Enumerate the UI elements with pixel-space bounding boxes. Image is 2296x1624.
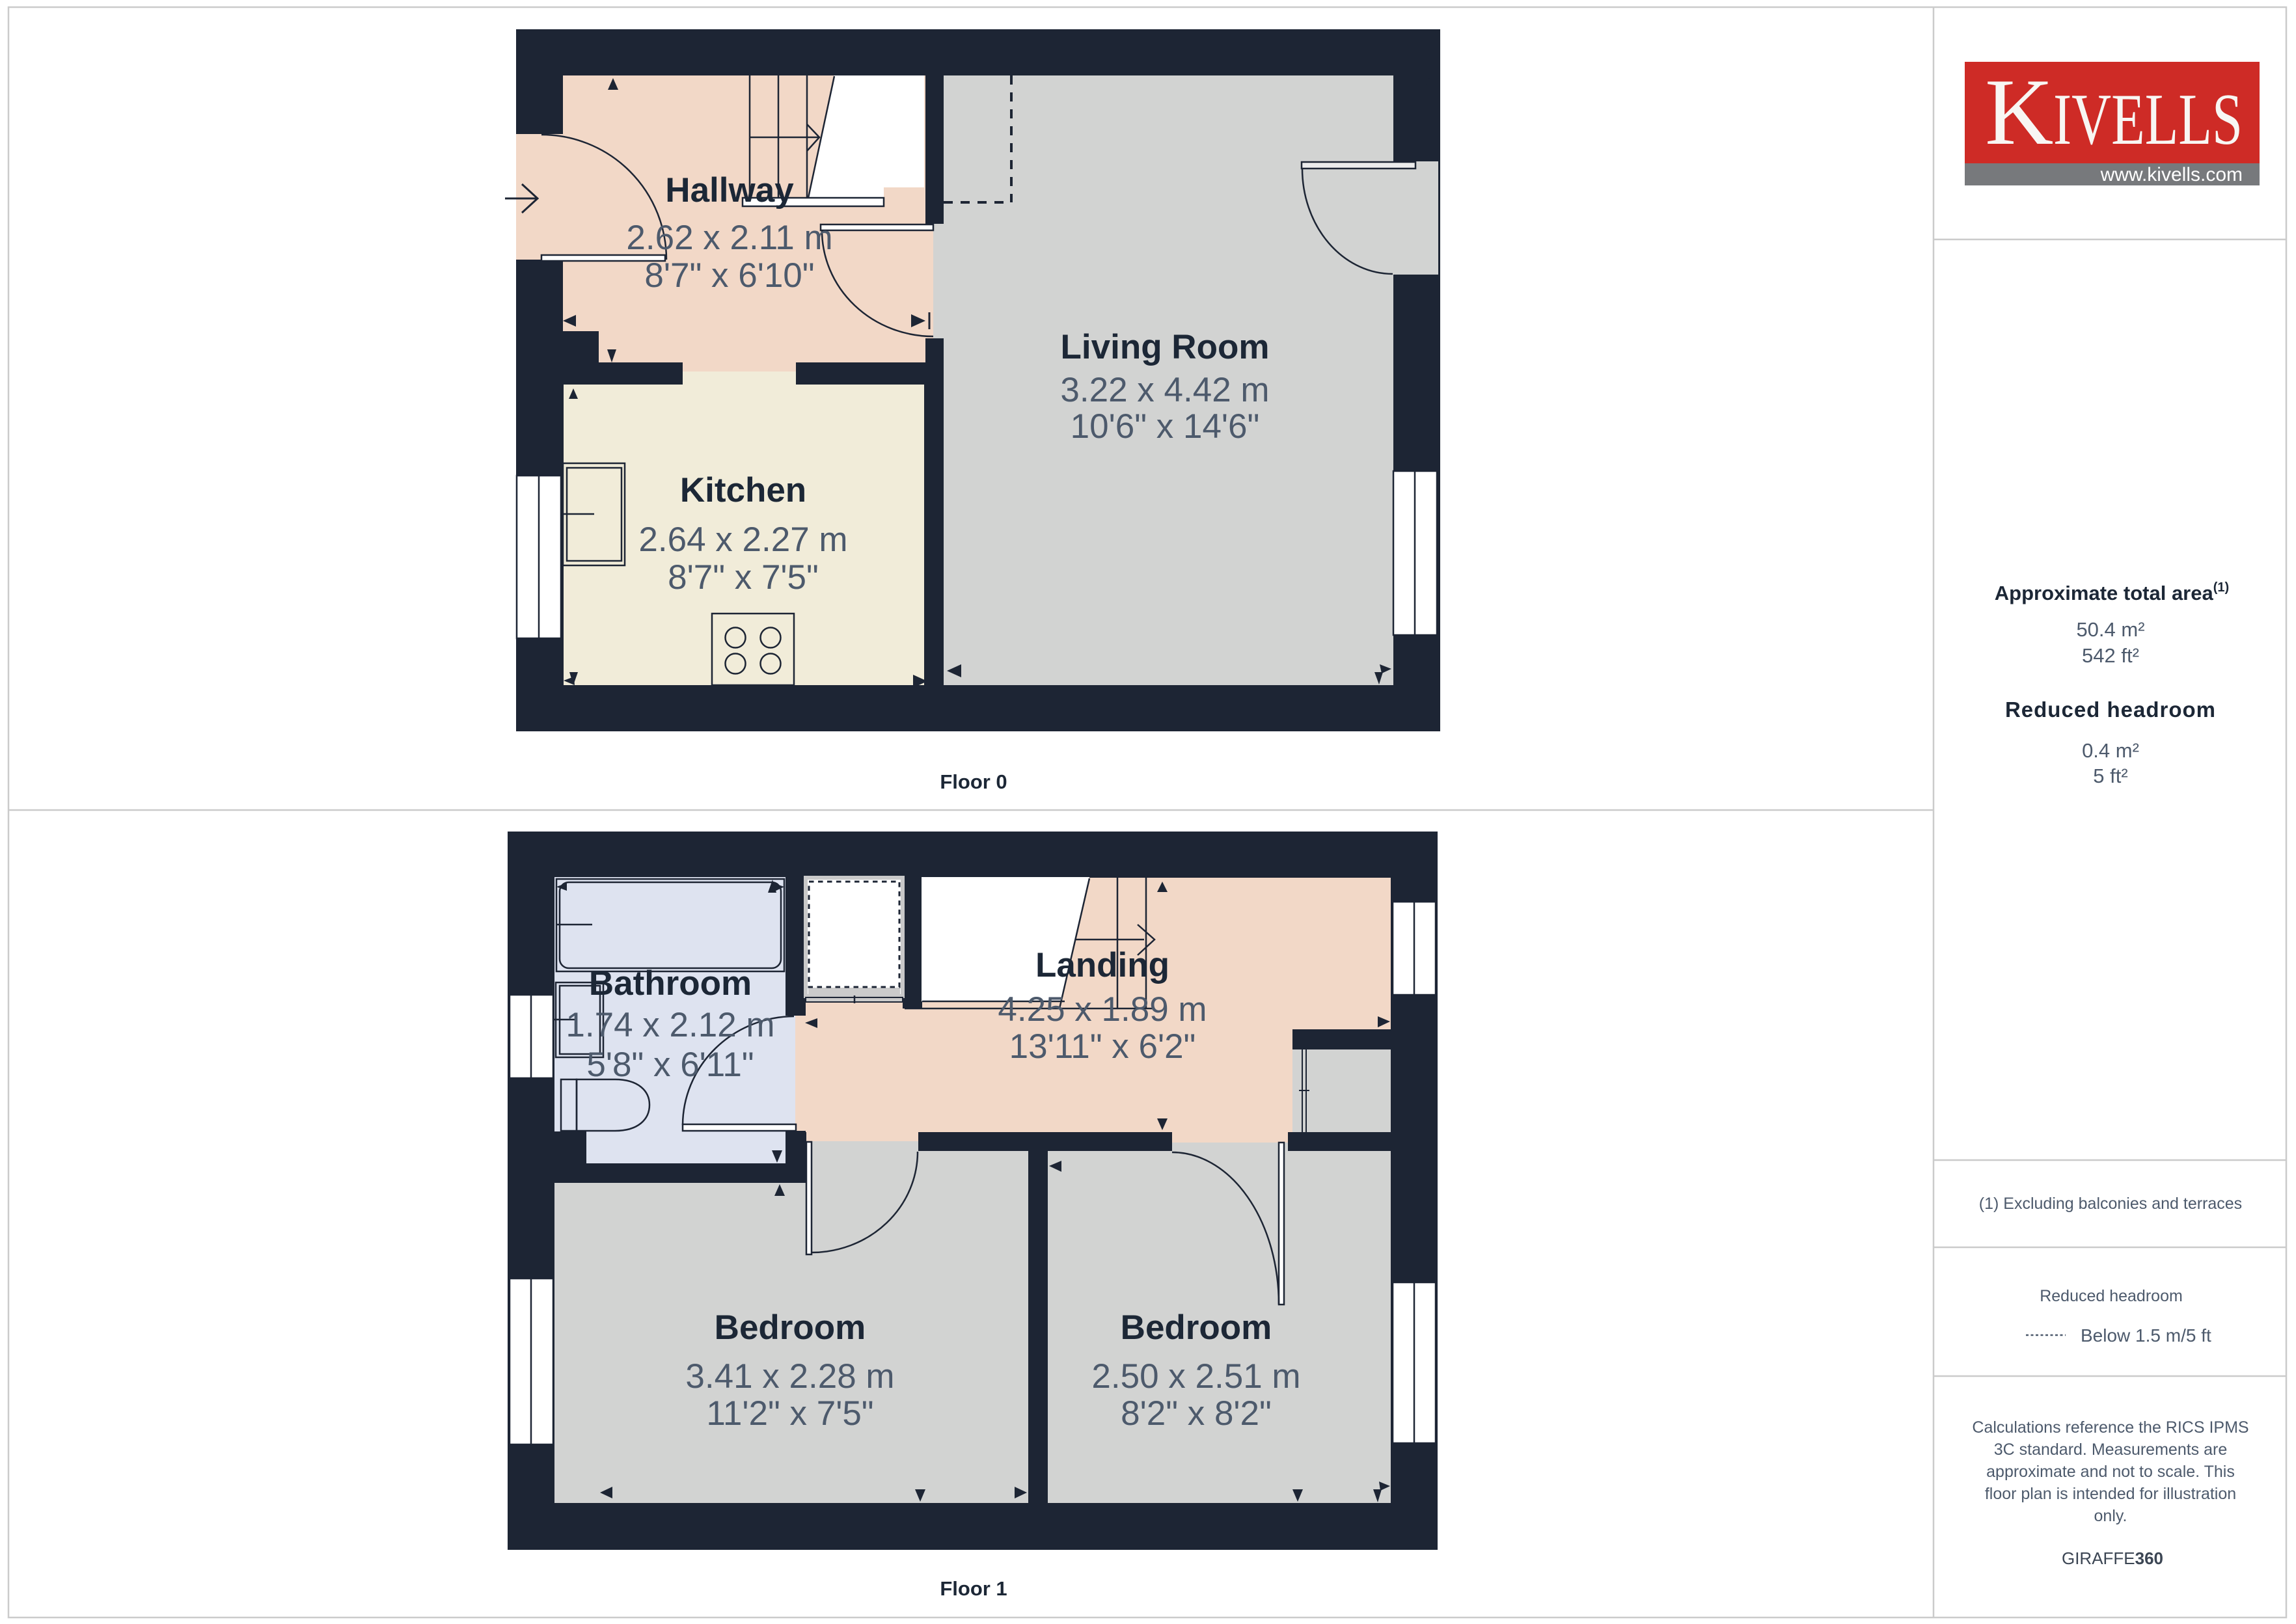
svg-text:3C standard. Measurements are: 3C standard. Measurements are <box>1994 1441 2228 1459</box>
svg-text:50.4 m²: 50.4 m² <box>2076 618 2144 641</box>
svg-text:13'11" x 6'2": 13'11" x 6'2" <box>1009 1027 1196 1066</box>
svg-text:2.62 x 2.11 m: 2.62 x 2.11 m <box>626 219 832 257</box>
svg-text:Reduced headroom: Reduced headroom <box>2040 1287 2183 1305</box>
svg-text:K: K <box>1985 59 2053 165</box>
svg-text:Floor 0: Floor 0 <box>940 770 1007 793</box>
svg-text:3.22 x 4.42 m: 3.22 x 4.42 m <box>1060 371 1269 409</box>
svg-text:8'7" x 7'5": 8'7" x 7'5" <box>668 558 819 597</box>
svg-text:Bathroom: Bathroom <box>589 964 752 1003</box>
svg-text:2.64 x 2.27 m: 2.64 x 2.27 m <box>638 521 847 559</box>
svg-text:Below 1.5 m/5 ft: Below 1.5 m/5 ft <box>2081 1325 2211 1346</box>
svg-text:2.50 x 2.51 m: 2.50 x 2.51 m <box>1091 1357 1300 1396</box>
svg-text:Hallway: Hallway <box>665 171 794 210</box>
svg-text:4.25 x 1.89 m: 4.25 x 1.89 m <box>998 990 1207 1029</box>
svg-text:542 ft²: 542 ft² <box>2082 644 2139 667</box>
svg-text:5 ft²: 5 ft² <box>2093 765 2127 787</box>
svg-text:(1) Excluding balconies and te: (1) Excluding balconies and terraces <box>1979 1195 2242 1213</box>
svg-text:GIRAFFE360: GIRAFFE360 <box>2062 1549 2163 1568</box>
svg-text:Floor 1: Floor 1 <box>940 1577 1007 1600</box>
svg-text:IVELLS: IVELLS <box>2053 79 2243 160</box>
svg-text:8'7" x 6'10": 8'7" x 6'10" <box>644 256 814 295</box>
svg-text:Landing: Landing <box>1035 946 1169 984</box>
svg-text:Living Room: Living Room <box>1061 328 1270 366</box>
svg-text:Reduced headroom: Reduced headroom <box>2005 697 2216 722</box>
svg-text:Kitchen: Kitchen <box>680 471 806 509</box>
svg-text:8'2" x 8'2": 8'2" x 8'2" <box>1121 1394 1272 1433</box>
svg-text:10'6" x 14'6": 10'6" x 14'6" <box>1071 407 1260 446</box>
svg-text:approximate and not to scale.: approximate and not to scale. This <box>1986 1463 2235 1481</box>
svg-text:Approximate total area(1): Approximate total area(1) <box>1995 580 2229 604</box>
svg-text:11'2" x 7'5": 11'2" x 7'5" <box>706 1394 873 1433</box>
svg-text:Bedroom: Bedroom <box>715 1308 866 1347</box>
svg-text:Calculations reference the RIC: Calculations reference the RICS IPMS <box>1972 1418 2248 1437</box>
svg-text:1.74 x 2.12 m: 1.74 x 2.12 m <box>566 1006 774 1044</box>
svg-text:5'8" x 6'11": 5'8" x 6'11" <box>586 1046 754 1084</box>
svg-text:www.kivells.com: www.kivells.com <box>2100 164 2243 185</box>
svg-text:only.: only. <box>2094 1507 2127 1525</box>
svg-text:0.4 m²: 0.4 m² <box>2082 739 2139 762</box>
svg-text:3.41 x 2.28 m: 3.41 x 2.28 m <box>685 1357 894 1396</box>
svg-text:floor plan is intended for ill: floor plan is intended for illustration <box>1985 1485 2236 1503</box>
svg-text:Bedroom: Bedroom <box>1121 1308 1272 1347</box>
